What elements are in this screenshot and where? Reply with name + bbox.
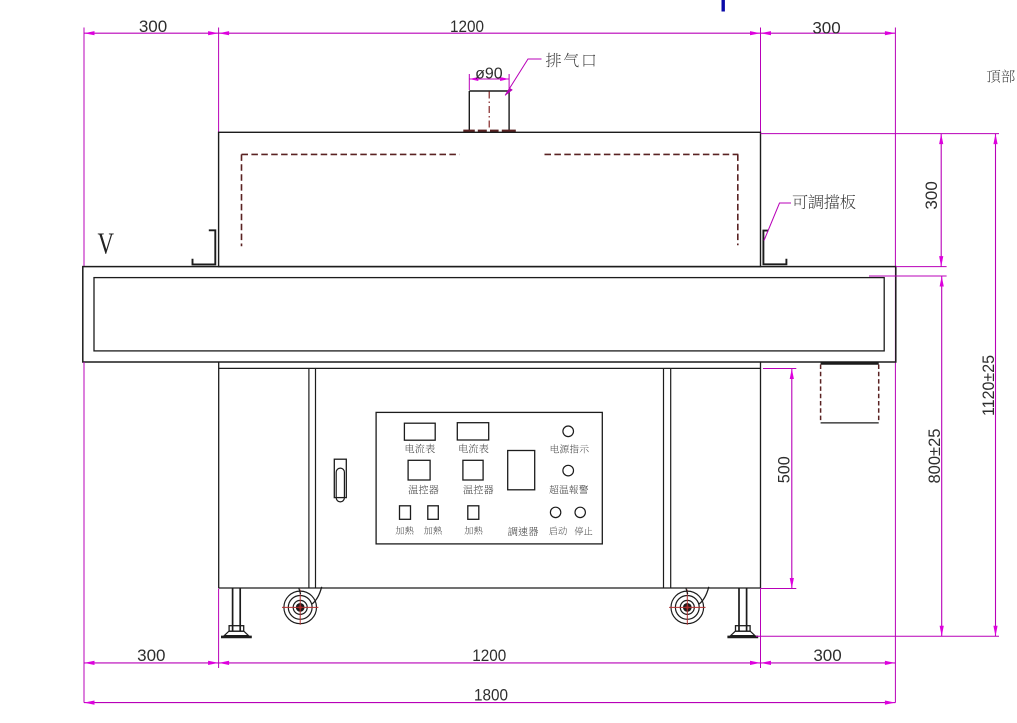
svg-text:300: 300 xyxy=(139,17,167,36)
svg-text:1120±25: 1120±25 xyxy=(979,355,998,416)
svg-text:500: 500 xyxy=(775,456,794,483)
svg-text:300: 300 xyxy=(813,646,841,665)
svg-text:V: V xyxy=(98,227,115,261)
svg-text:1200: 1200 xyxy=(450,17,484,36)
svg-text:800±25: 800±25 xyxy=(925,429,944,484)
svg-text:300: 300 xyxy=(137,646,165,665)
svg-text:300: 300 xyxy=(812,19,840,38)
svg-text:1200: 1200 xyxy=(472,646,506,665)
svg-text:300: 300 xyxy=(922,181,941,209)
svg-text:ø90: ø90 xyxy=(475,65,503,82)
svg-text:1800: 1800 xyxy=(474,685,508,704)
